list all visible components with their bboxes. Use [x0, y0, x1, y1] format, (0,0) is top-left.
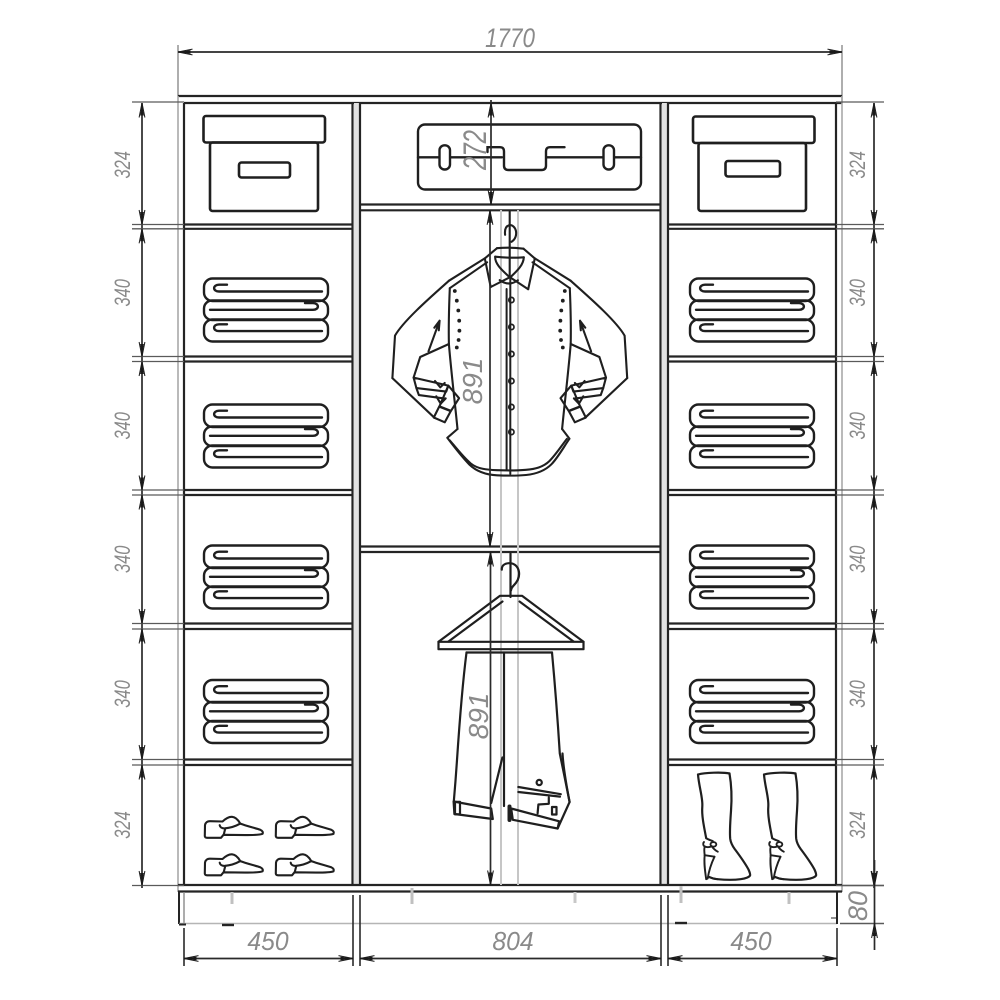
svg-text:324: 324 — [846, 151, 871, 179]
svg-text:804: 804 — [492, 927, 533, 956]
svg-text:340: 340 — [111, 412, 136, 440]
svg-text:324: 324 — [111, 811, 136, 839]
svg-text:340: 340 — [111, 279, 136, 307]
svg-text:340: 340 — [111, 680, 136, 708]
svg-text:891: 891 — [463, 693, 494, 740]
svg-text:324: 324 — [846, 811, 871, 839]
svg-text:450: 450 — [730, 927, 771, 956]
svg-text:340: 340 — [846, 279, 871, 307]
svg-text:272: 272 — [457, 130, 493, 171]
svg-text:340: 340 — [846, 412, 871, 440]
svg-text:450: 450 — [247, 927, 288, 956]
svg-text:80: 80 — [843, 891, 873, 921]
svg-text:340: 340 — [111, 545, 136, 573]
svg-text:891: 891 — [457, 358, 488, 405]
svg-text:1770: 1770 — [485, 24, 535, 53]
svg-text:340: 340 — [846, 545, 871, 573]
svg-text:340: 340 — [846, 680, 871, 708]
svg-text:324: 324 — [111, 151, 136, 179]
